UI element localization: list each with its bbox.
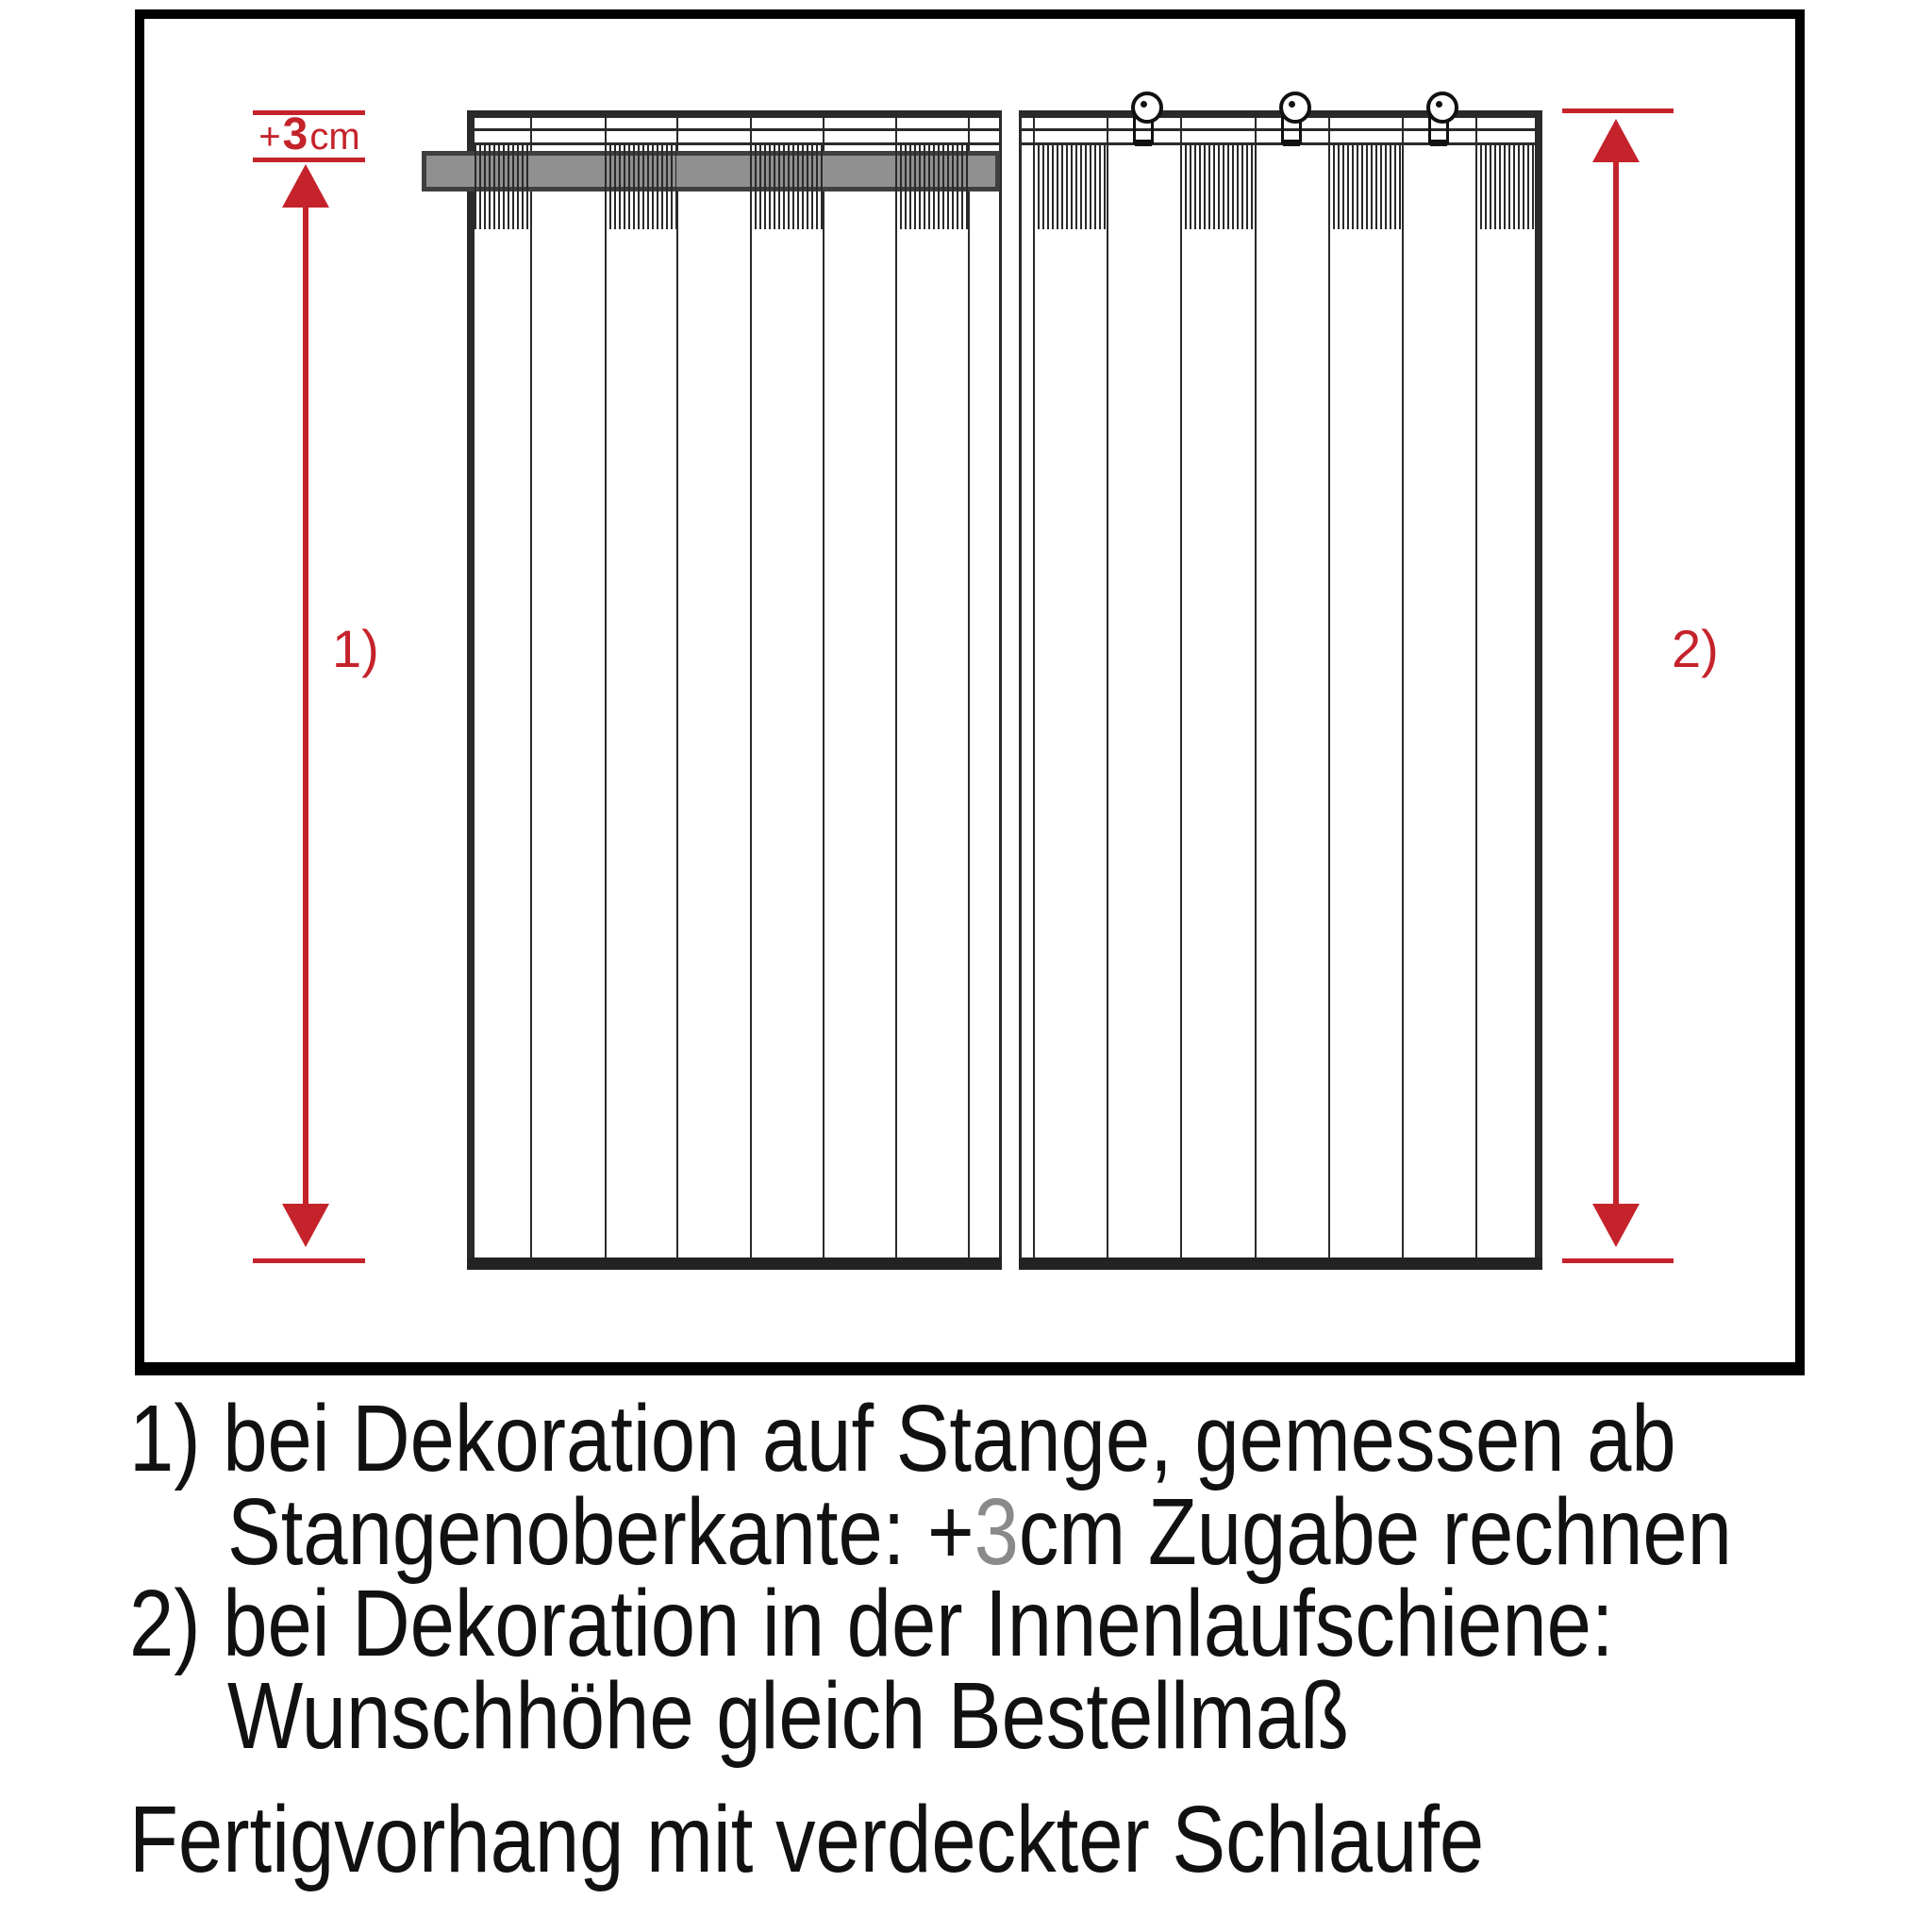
- arrow2-top-tick: [1562, 108, 1674, 113]
- glider-ring-icon: [1131, 92, 1163, 124]
- fold-line: [1475, 118, 1477, 1257]
- hidden-loop-hatch: [1328, 145, 1402, 229]
- curtain-measurement-diagram: + 3 cm 1) 2) 1) bei Dekoration auf Stang…: [0, 0, 1932, 1932]
- panel-edge: [1019, 110, 1022, 1270]
- allowance-unit: cm: [309, 116, 359, 158]
- caption-line-5: Fertigvorhang mit verdeckter Schlaufe: [129, 1792, 1484, 1887]
- hidden-loop-hatch: [750, 145, 823, 229]
- header-seam: [467, 128, 1002, 131]
- glider-ring-icon: [1279, 92, 1311, 124]
- fold-line: [750, 118, 752, 1257]
- caption-line-4: Wunschhöhe gleich Bestellmaß: [227, 1669, 1349, 1763]
- curtain-panel-left: [467, 110, 1002, 1270]
- panel-edge: [999, 110, 1002, 1270]
- allowance-plus: +: [258, 116, 280, 158]
- fold-line: [1255, 118, 1257, 1257]
- fold-line: [895, 118, 897, 1257]
- allowance-value: 3: [283, 114, 308, 156]
- fold-line: [1107, 118, 1108, 1257]
- fold-line: [1180, 118, 1182, 1257]
- panel-hem: [1019, 1257, 1542, 1270]
- panel-edge: [467, 110, 475, 1270]
- allowance-bottom-tick: [253, 158, 365, 162]
- fold-line: [823, 118, 824, 1257]
- glider-foot: [1283, 140, 1300, 146]
- caption-line-1: 1) bei Dekoration auf Stange, gemessen a…: [129, 1391, 1676, 1486]
- curtain-panel-right: [1019, 110, 1542, 1270]
- caption-line-3: 2) bei Dekoration in der Innenlaufschien…: [129, 1576, 1613, 1671]
- fold-line: [605, 118, 607, 1257]
- caption-line-2-prefix: Stangenoberkante: +: [227, 1479, 974, 1585]
- glider-ring-dot: [1141, 101, 1147, 108]
- caption-line-2: Stangenoberkante: +3cm Zugabe rechnen: [227, 1485, 1732, 1579]
- fold-line: [530, 118, 532, 1257]
- allowance-label: + 3 cm: [243, 114, 375, 156]
- measure-2-label: 2): [1672, 623, 1719, 675]
- panel-hem: [467, 1257, 1002, 1270]
- arrow2-head-down: [1592, 1204, 1640, 1247]
- glider-ring-dot: [1289, 101, 1295, 108]
- arrow2-head-up: [1592, 119, 1640, 162]
- arrow2-shaft: [1613, 158, 1619, 1206]
- hidden-loop-hatch: [605, 145, 676, 229]
- measure-1-label: 1): [332, 623, 379, 675]
- arrow1-shaft: [303, 200, 308, 1209]
- arrow1-bottom-tick: [253, 1258, 365, 1263]
- fold-line: [1402, 118, 1404, 1257]
- fold-line: [1328, 118, 1330, 1257]
- caption-line-2-value: 3: [974, 1479, 1019, 1585]
- glider-foot: [1430, 140, 1447, 146]
- arrow2-bottom-tick: [1562, 1258, 1674, 1263]
- fold-line: [676, 118, 678, 1257]
- glider-ring-dot: [1436, 101, 1442, 108]
- glider-foot: [1135, 140, 1152, 146]
- fold-line: [1033, 118, 1035, 1257]
- fold-line: [968, 118, 970, 1257]
- hidden-loop-hatch: [1475, 145, 1535, 229]
- hidden-loop-hatch: [475, 145, 530, 229]
- panel-edge: [1535, 110, 1542, 1270]
- hidden-loop-hatch: [1180, 145, 1255, 229]
- glider-ring-icon: [1426, 92, 1458, 124]
- arrow1-head-down: [282, 1204, 329, 1247]
- hidden-loop-hatch: [1033, 145, 1107, 229]
- hidden-loop-hatch: [895, 145, 968, 229]
- caption-line-2-suffix: cm Zugabe rechnen: [1019, 1479, 1732, 1585]
- panel-top-edge: [467, 110, 1002, 118]
